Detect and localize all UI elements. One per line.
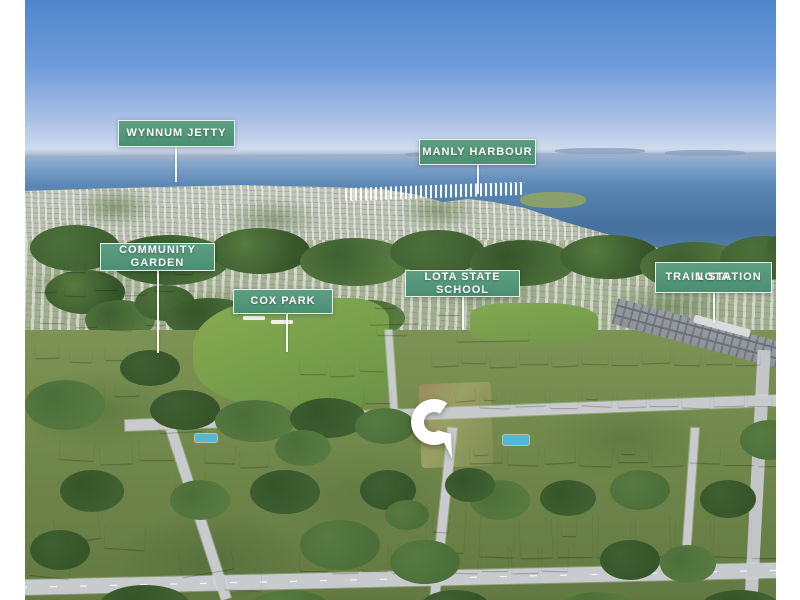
house-roof bbox=[110, 318, 132, 331]
house-roof bbox=[75, 315, 97, 328]
page: WYNNUM JETTY MANLY HARBOUR COMMUNITY GAR… bbox=[0, 0, 800, 600]
house-roof bbox=[300, 360, 326, 374]
house-roof bbox=[580, 447, 613, 466]
house-roof bbox=[360, 358, 384, 372]
swimming-pool bbox=[195, 434, 217, 442]
house-roof bbox=[40, 310, 64, 323]
distant-island bbox=[555, 148, 645, 154]
house-roof bbox=[582, 350, 608, 365]
leader-line-community-garden bbox=[157, 270, 159, 353]
harbour-headland bbox=[520, 192, 586, 208]
house-roof bbox=[330, 363, 354, 377]
house-roof bbox=[642, 349, 670, 364]
label-text: LOTA STATE SCHOOL bbox=[406, 271, 519, 297]
distant-island bbox=[665, 150, 745, 156]
house-roof bbox=[35, 345, 59, 359]
house-roof bbox=[100, 444, 133, 464]
house-roof bbox=[752, 518, 776, 558]
label-text: MANLY HARBOUR bbox=[422, 146, 532, 159]
house-roof bbox=[145, 314, 165, 325]
aerial-photo: WYNNUM JETTY MANLY HARBOUR COMMUNITY GAR… bbox=[25, 0, 776, 600]
house-roof bbox=[652, 447, 685, 466]
house-roof bbox=[612, 352, 638, 365]
tree-canopy bbox=[60, 470, 124, 512]
house-roof bbox=[512, 548, 539, 574]
label-text: COX PARK bbox=[250, 295, 315, 308]
house-roof bbox=[542, 545, 569, 572]
house-roof bbox=[457, 329, 529, 341]
house-roof bbox=[508, 447, 539, 465]
house-roof bbox=[713, 514, 748, 557]
cox-park-field bbox=[193, 298, 389, 406]
park-practice-net bbox=[271, 320, 293, 324]
house-roof bbox=[70, 350, 92, 363]
house-roof bbox=[462, 350, 486, 364]
house-roof bbox=[674, 352, 700, 366]
label-text: COMMUNITY GARDEN bbox=[101, 244, 214, 270]
label-text-line2: TRAIN STATION bbox=[665, 271, 761, 284]
house-roof bbox=[562, 520, 576, 536]
house-roof bbox=[240, 450, 269, 468]
label-manly-harbour: MANLY HARBOUR bbox=[419, 139, 536, 165]
label-lota-train-station: LOTA TRAIN STATION bbox=[655, 262, 772, 293]
house-roof bbox=[690, 445, 721, 463]
park-practice-net bbox=[243, 316, 265, 320]
house-roof bbox=[125, 284, 145, 296]
label-community-garden: COMMUNITY GARDEN bbox=[100, 243, 215, 271]
tree-canopy bbox=[300, 520, 380, 570]
house-roof bbox=[482, 545, 508, 571]
tree-canopy bbox=[275, 430, 331, 466]
house-roof bbox=[377, 326, 407, 336]
house-roof bbox=[682, 393, 711, 409]
house-roof bbox=[370, 311, 418, 325]
house-roof bbox=[375, 300, 395, 308]
tree-canopy bbox=[445, 468, 495, 502]
house-roof bbox=[35, 280, 57, 293]
house-roof bbox=[622, 448, 635, 454]
leader-line-wynnum-jetty bbox=[175, 147, 177, 182]
house-roof bbox=[550, 393, 578, 408]
label-text: WYNNUM JETTY bbox=[127, 127, 227, 140]
tree-canopy bbox=[600, 540, 660, 580]
tree-canopy bbox=[540, 480, 596, 516]
house-roof bbox=[437, 306, 459, 315]
house-roof bbox=[432, 351, 459, 366]
house-roof bbox=[490, 354, 516, 368]
house-roof bbox=[650, 390, 678, 406]
swimming-pool bbox=[503, 435, 529, 445]
house-roof bbox=[140, 440, 174, 460]
leader-line-lota-state-school bbox=[462, 296, 464, 330]
house-roof bbox=[65, 285, 85, 297]
horizon-shoreline bbox=[25, 149, 776, 161]
tree-canopy bbox=[25, 380, 105, 430]
label-wynnum-jetty: WYNNUM JETTY bbox=[118, 120, 235, 147]
house-roof bbox=[115, 383, 139, 397]
house-roof bbox=[104, 524, 146, 551]
house-roof bbox=[65, 262, 85, 272]
tree-canopy bbox=[660, 545, 716, 583]
house-roof bbox=[545, 445, 576, 464]
house-roof bbox=[714, 389, 745, 406]
label-cox-park: COX PARK bbox=[233, 289, 333, 314]
house-roof bbox=[586, 393, 598, 400]
house-roof bbox=[432, 510, 449, 533]
leader-line-cox-park bbox=[286, 313, 288, 352]
tree-canopy bbox=[385, 500, 429, 530]
house-roof bbox=[520, 350, 548, 364]
house-roof bbox=[618, 392, 647, 408]
house-roof bbox=[365, 388, 391, 403]
house-roof bbox=[552, 352, 579, 366]
house-roof bbox=[706, 350, 732, 364]
tree-canopy bbox=[700, 480, 756, 518]
tree-canopy bbox=[390, 540, 460, 584]
c-logo-location-pin bbox=[411, 396, 459, 460]
tree-canopy bbox=[250, 470, 320, 514]
tree-canopy bbox=[170, 480, 230, 520]
tree-canopy bbox=[355, 408, 415, 444]
tree-canopy bbox=[150, 390, 220, 430]
tree-canopy bbox=[30, 530, 90, 570]
tree-canopy bbox=[210, 228, 310, 274]
label-lota-state-school: LOTA STATE SCHOOL bbox=[405, 270, 520, 297]
house-roof bbox=[474, 448, 488, 455]
house-roof bbox=[515, 389, 546, 406]
house-roof bbox=[484, 394, 496, 400]
house-roof bbox=[59, 439, 94, 461]
leader-line-lota-train-station bbox=[713, 292, 715, 323]
house-roof bbox=[748, 392, 772, 406]
leader-line-manly-harbour bbox=[477, 164, 479, 194]
house-roof bbox=[225, 569, 262, 590]
house-roof bbox=[95, 278, 117, 290]
house-roof bbox=[736, 352, 760, 366]
tree-canopy bbox=[120, 350, 180, 386]
tree-canopy bbox=[610, 470, 670, 510]
house-roof bbox=[205, 444, 236, 463]
